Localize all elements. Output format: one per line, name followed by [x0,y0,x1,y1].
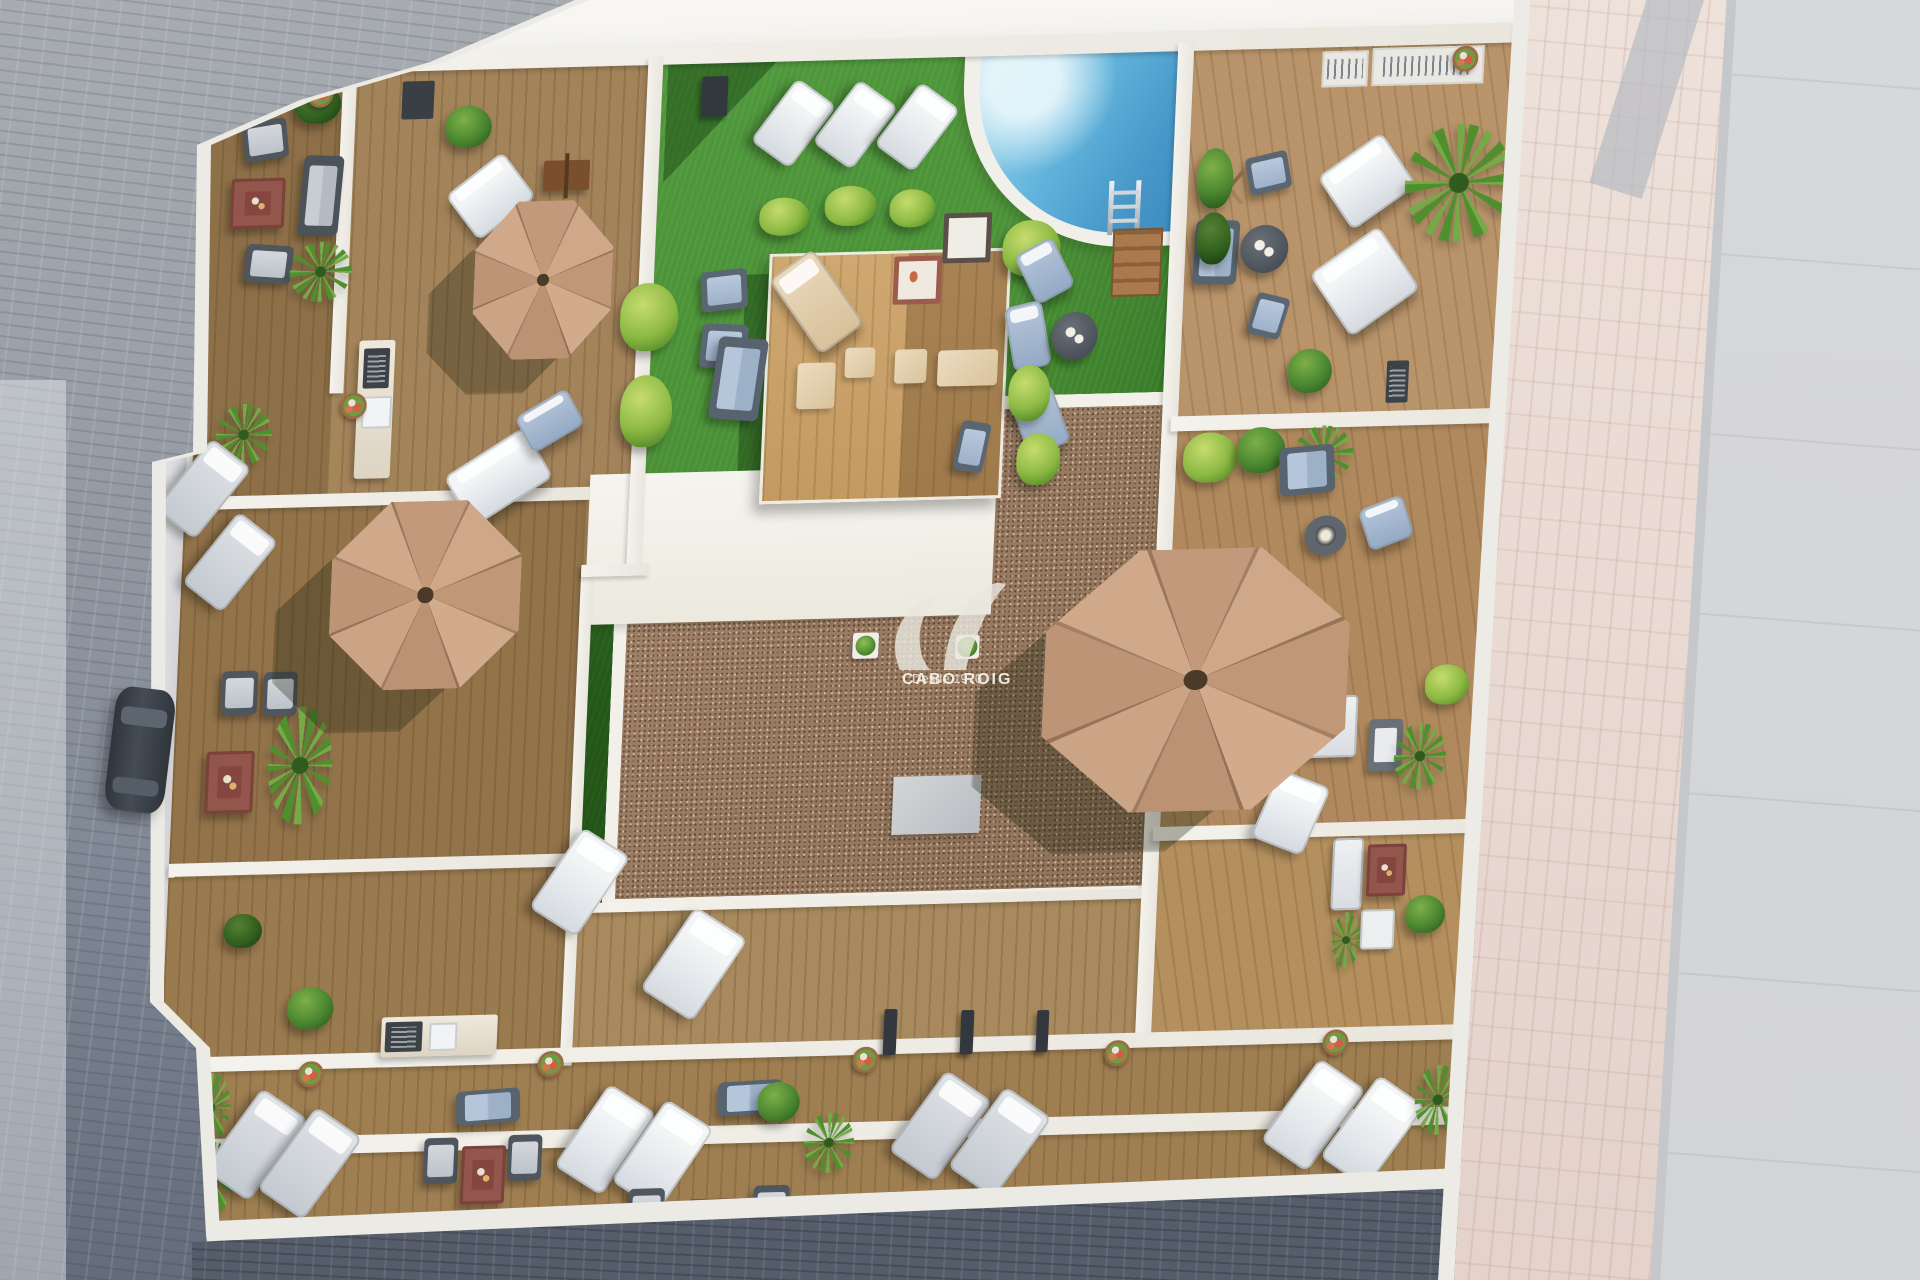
watermark: CABO ROIGDesde 1970 [862,575,1102,705]
terrace-bottom-left [160,867,570,1062]
balcony-railing [1321,50,1369,87]
watermark-logo-icon [874,575,1014,671]
armchair [220,671,258,716]
building-roof-block [156,22,1544,1159]
skylight [892,255,942,304]
sofa [456,1087,520,1126]
lamp-post [701,76,729,117]
sofa [297,155,345,236]
floor-cushion [894,349,927,384]
scene: CABO ROIGDesde 1970 [0,0,1920,1280]
armchair [243,244,295,285]
chair [1360,909,1396,950]
skylight [942,212,992,263]
terrace-bottom-right [1150,831,1490,1036]
sofa [1279,443,1335,496]
terrace-bottom-center [563,888,1141,1051]
wall-divider [581,563,650,577]
outdoor-sink [428,1022,457,1051]
bbq-grill [1385,360,1409,403]
fire-pit-table [460,1145,507,1204]
roof-access-hatch [401,81,435,120]
fire-pit-table [1366,844,1407,897]
coffee-table [204,751,255,814]
floor-cushion [937,349,999,387]
floor-cushion [844,347,875,378]
armchair [507,1134,543,1181]
watermark-tagline: Desde 1970 [912,671,982,686]
pool-ladder [1103,180,1145,235]
armchair [700,268,748,313]
floor-cushion [796,362,836,409]
pergola-post [883,1009,898,1055]
pergola-post [960,1010,975,1054]
coffee-table [230,178,286,229]
bbq-grill [384,1021,422,1052]
building-interior [156,22,1544,1159]
bench [1330,838,1364,911]
bbq-grill [363,348,391,389]
pool-wood-steps [1110,228,1163,297]
pavement-shadow [1589,0,1706,199]
armchair [423,1137,459,1184]
folding-table [543,160,590,191]
utility-box [891,775,982,835]
pergola-post [1036,1010,1050,1052]
